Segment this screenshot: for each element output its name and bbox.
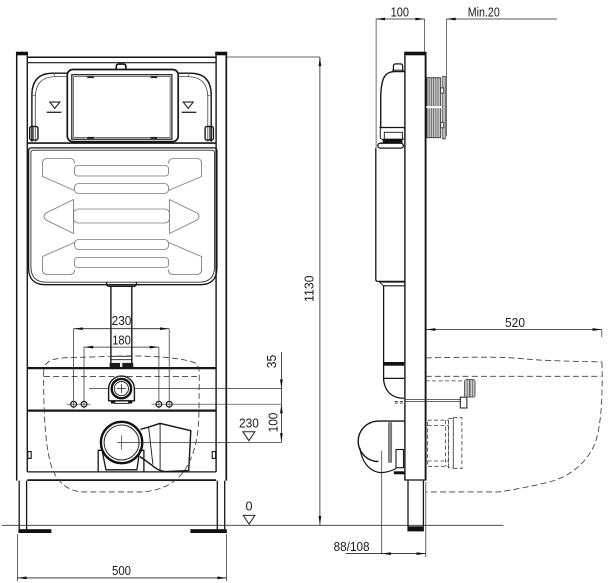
svg-text:Min.20: Min.20 <box>468 5 500 20</box>
svg-text:180: 180 <box>112 333 131 348</box>
svg-text:0: 0 <box>246 499 253 514</box>
svg-text:1130: 1130 <box>302 275 317 302</box>
svg-text:88/108: 88/108 <box>334 539 370 554</box>
svg-text:500: 500 <box>112 563 131 578</box>
svg-text:100: 100 <box>265 413 280 433</box>
svg-text:230: 230 <box>239 416 259 431</box>
svg-text:520: 520 <box>505 315 525 330</box>
svg-text:35: 35 <box>264 355 279 369</box>
svg-text:230: 230 <box>112 313 132 328</box>
svg-text:100: 100 <box>391 5 409 20</box>
